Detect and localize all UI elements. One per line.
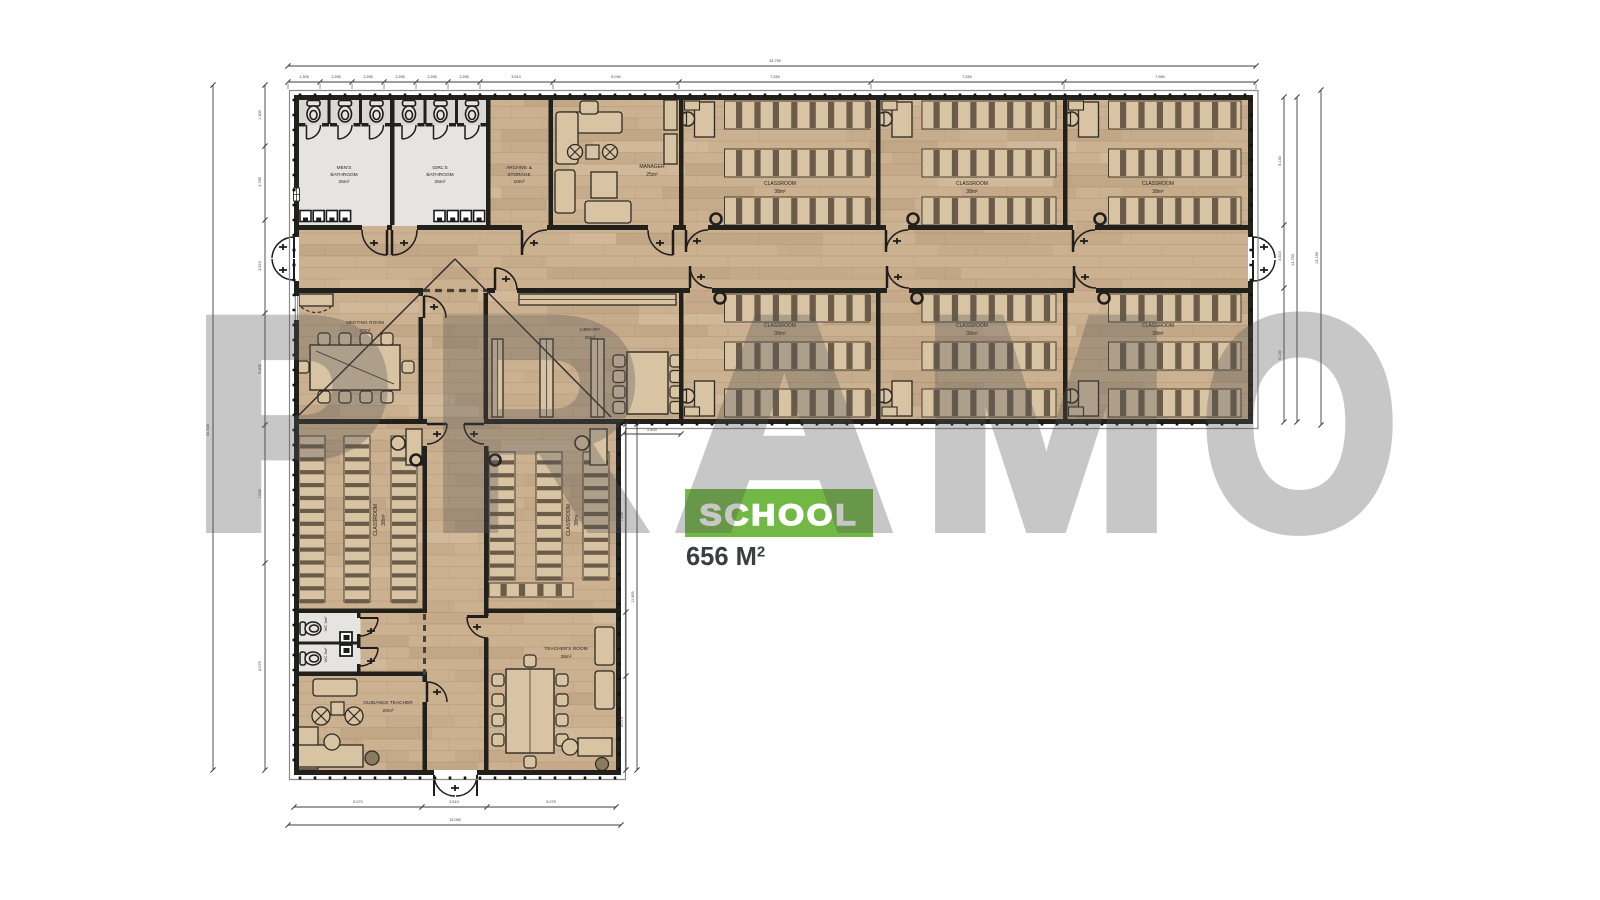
svg-text:38m²: 38m² [774,189,786,195]
svg-text:5.030: 5.030 [611,75,621,79]
svg-text:CLASSROOM: CLASSROOM [956,181,988,187]
svg-text:25m²: 25m² [339,179,350,185]
svg-text:STORAGE: STORAGE [507,172,530,178]
svg-text:TEACHER'S ROOM: TEACHER'S ROOM [544,646,587,652]
svg-text:10m²: 10m² [514,179,525,185]
svg-text:BATHROOM: BATHROOM [330,172,357,178]
svg-text:2.400: 2.400 [647,428,657,432]
svg-text:1.255: 1.255 [363,75,373,79]
svg-text:3.765: 3.765 [258,177,262,187]
svg-text:1.255: 1.255 [427,75,437,79]
svg-text:1.305: 1.305 [299,75,309,79]
svg-text:6.075: 6.075 [620,717,624,727]
svg-text:5.070: 5.070 [353,800,363,804]
svg-text:7.530: 7.530 [770,75,780,79]
svg-text:CLASSROOM: CLASSROOM [1142,181,1174,187]
svg-text:CLASSROOM: CLASSROOM [764,181,796,187]
svg-text:A: A [676,255,893,591]
svg-text:38m²: 38m² [966,189,978,195]
svg-text:7.580: 7.580 [1155,75,1165,79]
svg-text:5.130: 5.130 [1278,156,1282,166]
svg-text:11.905: 11.905 [631,591,635,602]
svg-text:M: M [921,255,1171,591]
svg-text:33.750: 33.750 [769,59,781,63]
svg-text:WC 3m²: WC 3m² [323,647,328,662]
svg-text:MANAGER: MANAGER [639,164,665,170]
svg-text:R: R [429,255,646,591]
svg-text:O: O [1201,256,1398,591]
svg-text:38m²: 38m² [1152,189,1164,195]
svg-text:MEN'S: MEN'S [337,165,352,171]
svg-text:3.510: 3.510 [449,800,459,804]
svg-text:6.075: 6.075 [258,661,262,671]
svg-text:1.255: 1.255 [331,75,341,79]
svg-text:P: P [192,255,392,591]
svg-text:GUIDANCE TEACHER: GUIDANCE TEACHER [363,700,413,706]
svg-text:5.075: 5.075 [546,800,556,804]
svg-text:7.530: 7.530 [962,75,972,79]
svg-text:38m²: 38m² [561,654,572,660]
svg-text:1.255: 1.255 [459,75,469,79]
svg-text:1.300: 1.300 [258,110,262,120]
svg-text:3.510: 3.510 [511,75,521,79]
svg-text:1.255: 1.255 [395,75,405,79]
svg-text:13.050: 13.050 [449,818,461,822]
svg-text:BATHROOM: BATHROOM [426,172,453,178]
svg-text:25m²: 25m² [435,179,446,185]
svg-text:GIRL'S: GIRL'S [432,165,447,171]
svg-text:ARCHIVE &: ARCHIVE & [506,165,533,171]
svg-text:20m²: 20m² [383,708,394,714]
svg-text:WC 3m²: WC 3m² [323,616,328,631]
svg-text:25m²: 25m² [646,172,658,178]
